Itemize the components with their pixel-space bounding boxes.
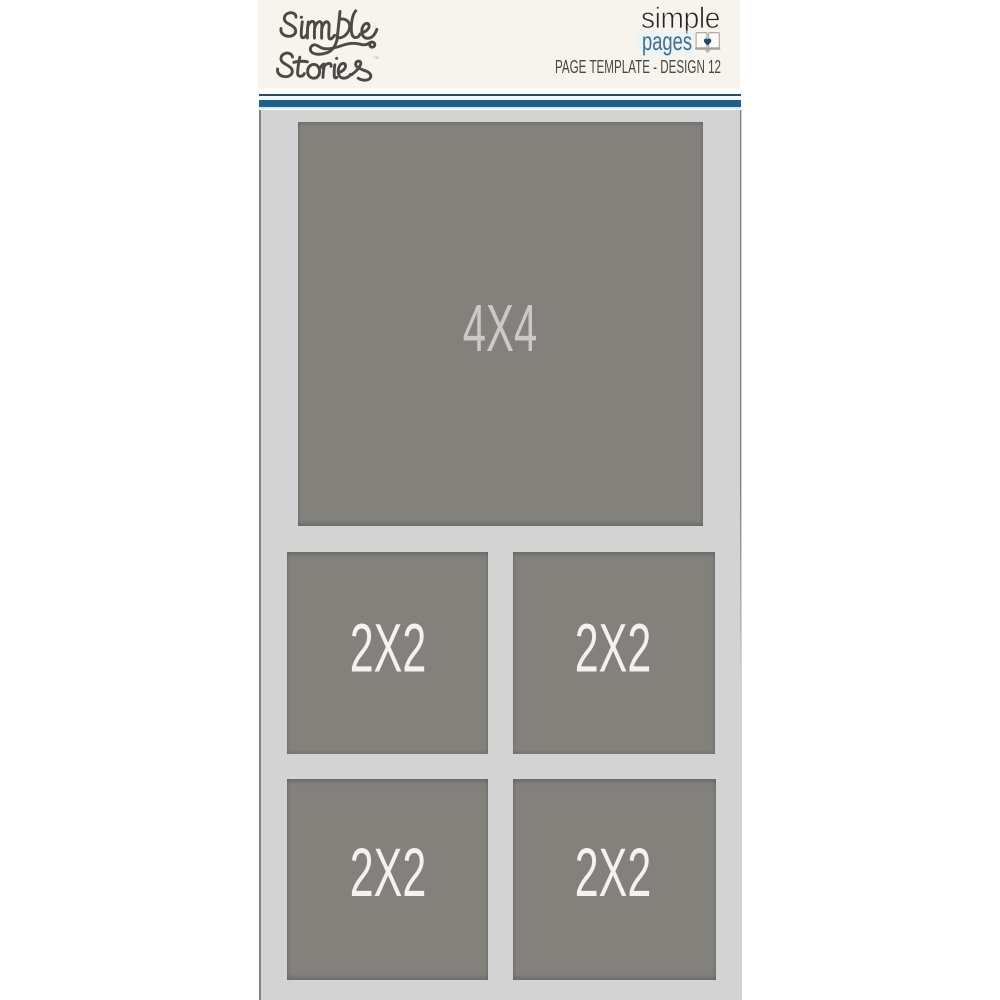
svg-text:2X2: 2X2: [350, 610, 427, 687]
svg-text:pages: pages: [642, 26, 692, 56]
svg-text:2X2: 2X2: [575, 610, 652, 687]
svg-text:2X2: 2X2: [575, 834, 652, 911]
svg-text:2X2: 2X2: [350, 834, 427, 911]
svg-text:TM: TM: [374, 56, 379, 60]
svg-text:PAGE TEMPLATE - DESIGN 12: PAGE TEMPLATE - DESIGN 12: [555, 56, 721, 77]
svg-text:4X4: 4X4: [463, 292, 538, 366]
